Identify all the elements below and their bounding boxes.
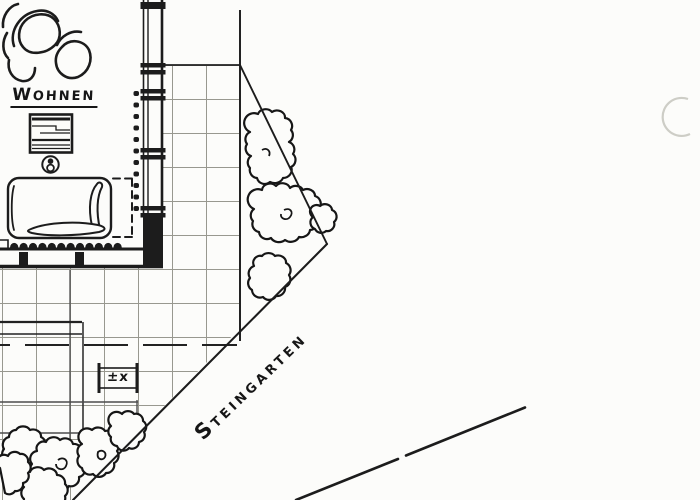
sofa [8, 178, 132, 238]
room-label: WOHNEN [10, 85, 99, 108]
cabinet-symbol [30, 115, 72, 153]
garden-path-line [296, 408, 525, 500]
window-wall [134, 0, 166, 218]
sofa-dashed-extension [113, 179, 132, 238]
punch-hole-artifact [663, 98, 690, 136]
planting-bed-right-blobs [244, 109, 336, 300]
elevation-marker-text: ±x [98, 366, 138, 389]
wall-hatch-dots [134, 91, 140, 211]
floor-plan-scan: WOHNEN STEINGARTEN ±x [0, 0, 700, 500]
circled-8-symbol [42, 156, 58, 172]
plan-drawing [0, 0, 700, 500]
armchair-sketch [3, 4, 91, 81]
sill-scallops [10, 243, 122, 248]
